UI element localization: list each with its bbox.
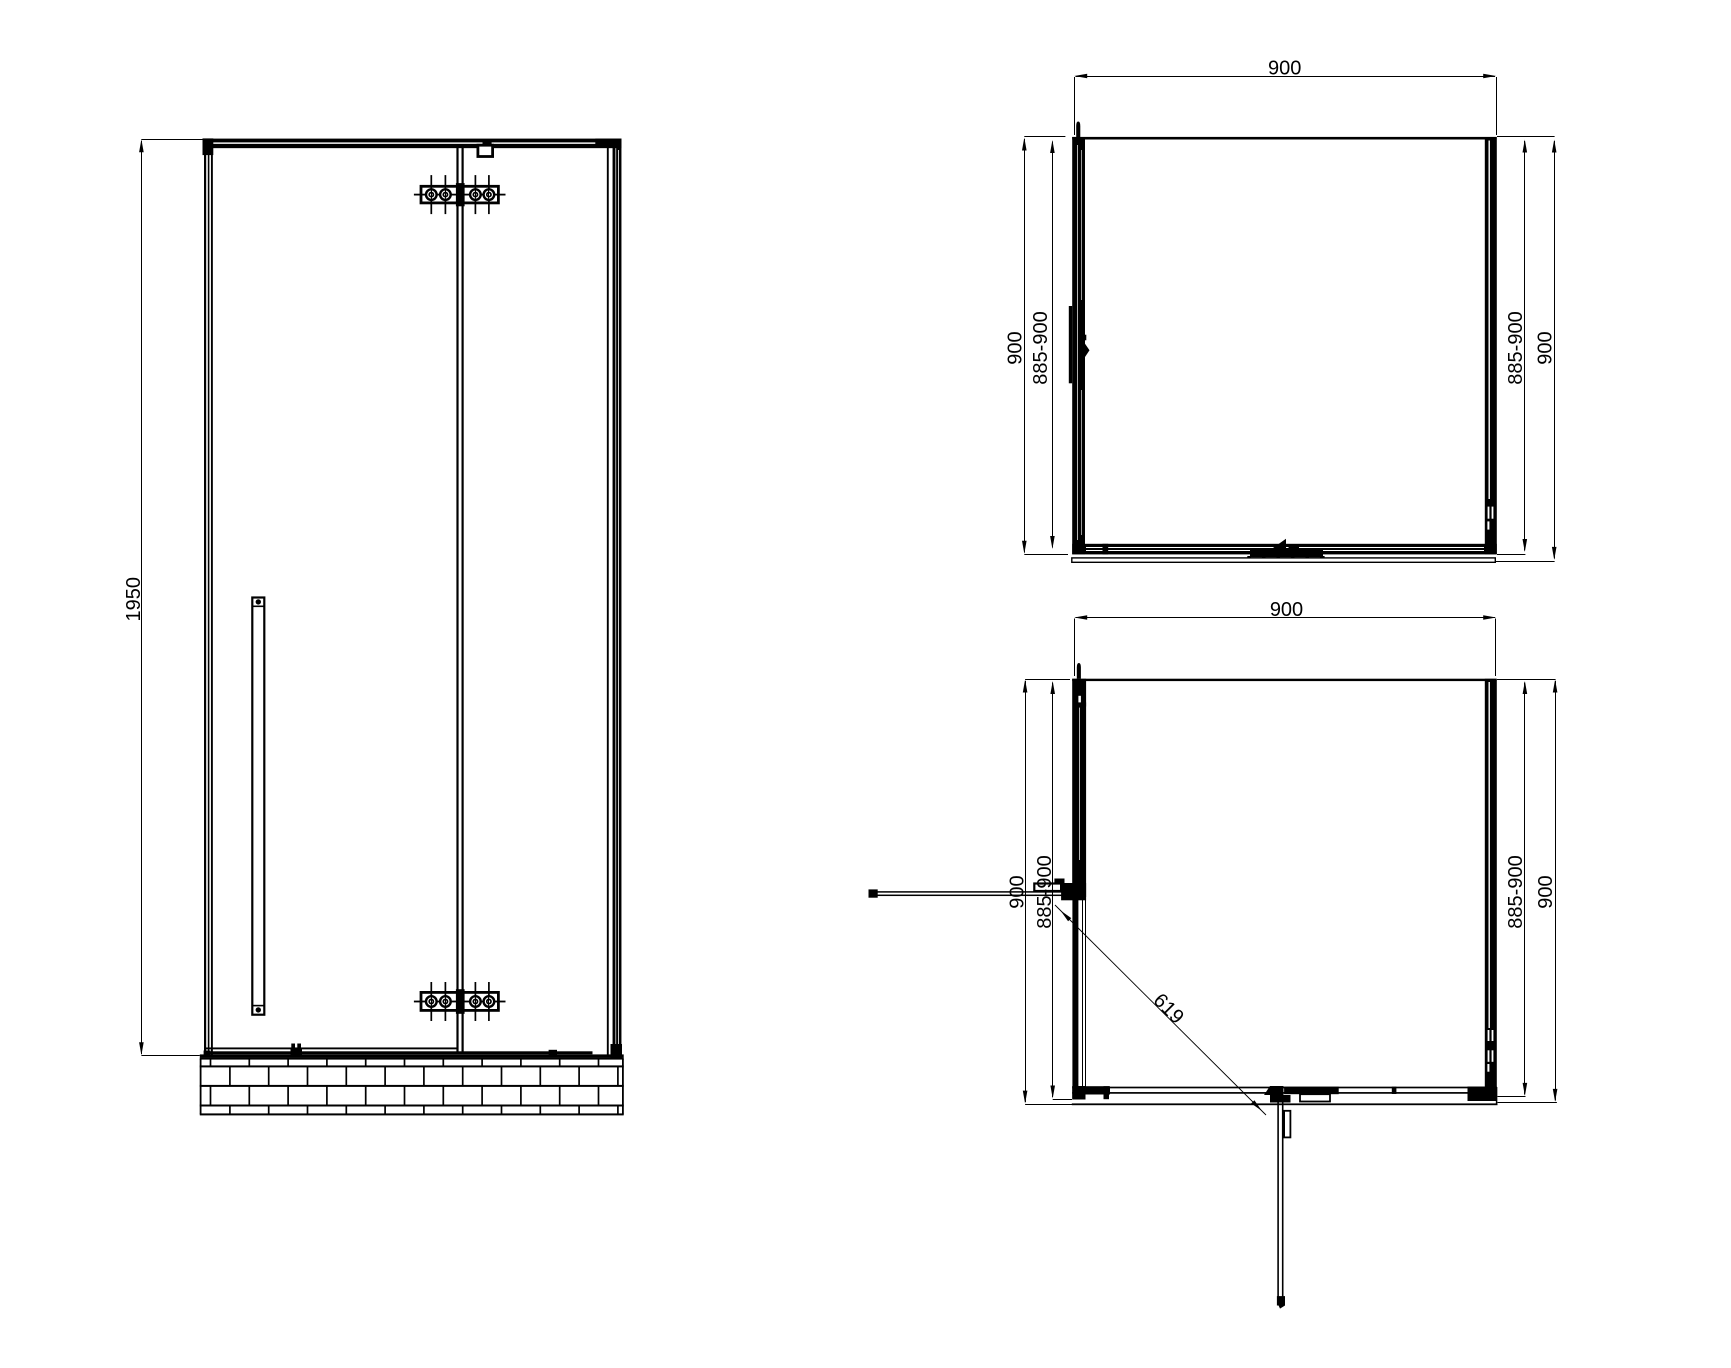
svg-text:900: 900 <box>1004 331 1026 364</box>
svg-text:900: 900 <box>1534 331 1556 364</box>
svg-text:885-900: 885-900 <box>1505 855 1527 928</box>
svg-text:885-900: 885-900 <box>1505 311 1527 384</box>
svg-text:900: 900 <box>1007 875 1029 908</box>
svg-text:900: 900 <box>1270 599 1303 621</box>
svg-text:885-900: 885-900 <box>1034 855 1056 928</box>
svg-text:900: 900 <box>1268 58 1301 80</box>
svg-text:885-900: 885-900 <box>1030 311 1052 384</box>
svg-text:900: 900 <box>1535 875 1557 908</box>
svg-text:1950: 1950 <box>123 577 145 622</box>
